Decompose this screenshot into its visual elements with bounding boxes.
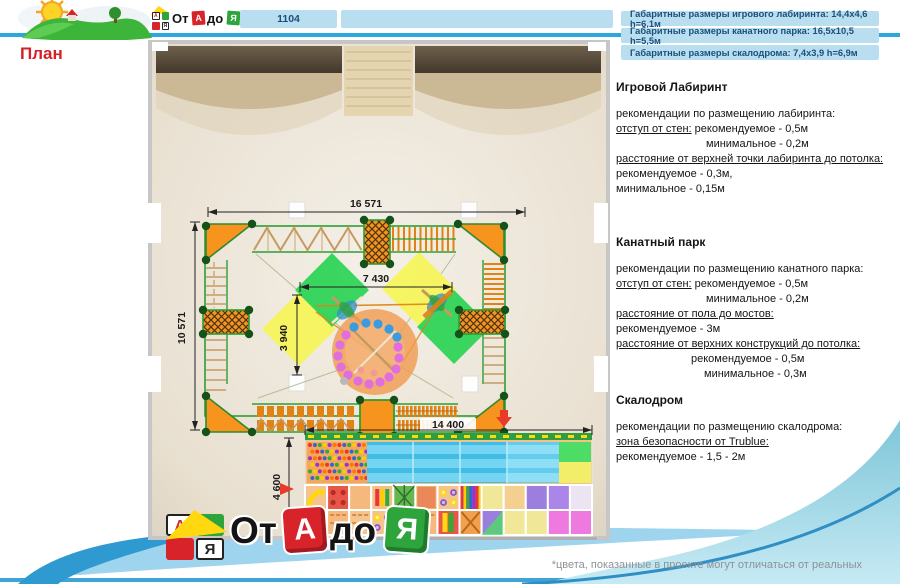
section-title: Игровой Лабиринт [616, 80, 892, 94]
page-title: План [20, 44, 63, 64]
floor-plan: 16 571 7 430 3 940 10 571 14 400 4 600 [148, 40, 610, 540]
section-labyrinth: Игровой Лабиринт рекомендации по размеще… [616, 80, 892, 197]
logo-word-do: до [207, 11, 223, 26]
section-ropepark: Канатный парк рекомендации по размещению… [616, 235, 892, 382]
footer-note: *цвета, показанные в проекте могут отлич… [552, 559, 862, 571]
dim-inner-height: 3 940 [278, 325, 290, 351]
header-blank-box [341, 10, 613, 28]
logo-cube-a: А [280, 504, 329, 555]
brand-logo-large: А Я От А до Я [158, 492, 438, 564]
info-box-labyrinth: Габаритные размеры игрового лабиринта: 1… [621, 11, 879, 26]
section-title: Скалодром [616, 393, 892, 407]
section-lines: рекомендации по размещению канатного пар… [616, 262, 892, 382]
logo-word-do: до [330, 510, 376, 552]
logo-cube-a: А [190, 9, 206, 26]
info-box-ropepark: Габаритные размеры канатного парка: 16,5… [621, 28, 879, 43]
hill-logo [14, 0, 154, 40]
section-climbwall: Скалодром рекомендации по размещению ска… [616, 393, 892, 465]
dim-top: 16 571 [350, 198, 382, 210]
section-title: Канатный парк [616, 235, 892, 249]
plan-drawing [148, 42, 608, 540]
logo-cube-ya: Я [382, 504, 431, 555]
logo-block-a: А [152, 12, 160, 20]
section-lines: рекомендации по размещению скалодрома:зо… [616, 420, 892, 465]
info-box-climbwall: Габаритные размеры скалодрома: 7,4x3,9 h… [621, 45, 879, 60]
logo-block-ya: Я [162, 22, 170, 30]
bottom-line [0, 578, 900, 582]
dim-inner-width: 7 430 [363, 273, 389, 285]
dim-left: 10 571 [176, 312, 188, 344]
logo-word-ot: От [172, 11, 188, 26]
project-number-box: 1104 [240, 10, 337, 28]
logo-block-ya: Я [196, 538, 224, 560]
brand-logo-small: А Я От А до Я [150, 3, 250, 33]
dim-bottom: 14 400 [432, 419, 464, 431]
logo-word-ot: От [230, 510, 277, 552]
section-lines: рекомендации по размещению лабиринта:отс… [616, 107, 892, 197]
